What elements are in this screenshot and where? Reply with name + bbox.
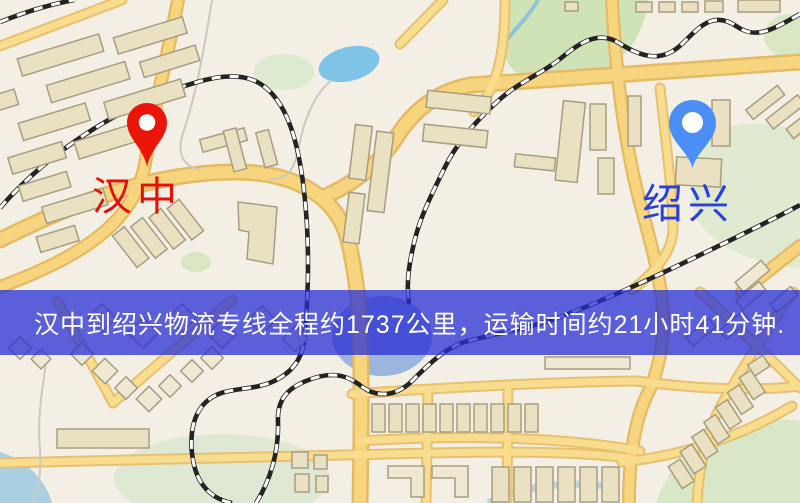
map-background[interactable] [0,0,800,503]
map-view: 汉中 绍兴 汉中到绍兴物流专线全程约1737公里，运输时间约21小时41分钟. [0,0,800,503]
destination-pin-icon[interactable] [669,100,716,168]
origin-city-label: 汉中 [92,177,182,217]
route-info-text: 汉中到绍兴物流专线全程约1737公里，运输时间约21小时41分钟. [34,305,785,341]
destination-city-label: 绍兴 [642,184,734,225]
route-info-banner: 汉中到绍兴物流专线全程约1737公里，运输时间约21小时41分钟. [0,290,800,355]
origin-pin-icon[interactable] [127,103,167,167]
